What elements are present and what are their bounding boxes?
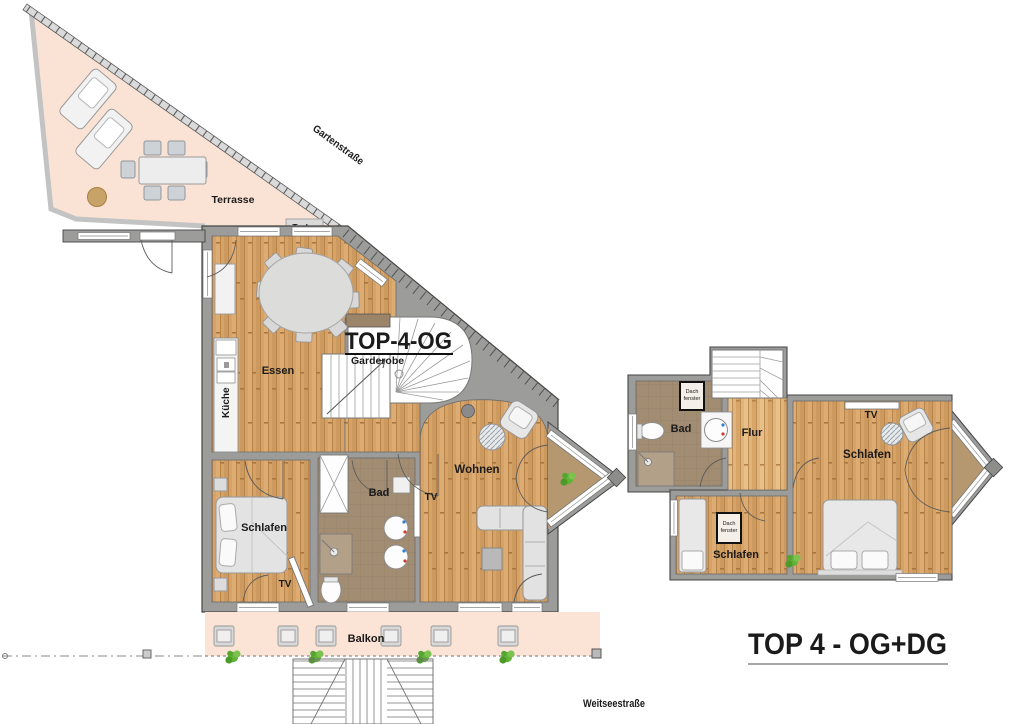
svg-text:fenster: fenster: [684, 396, 701, 402]
plan-og: Essen Küche Schlafen TV Bad TV Wohnen TO…: [63, 226, 626, 612]
exterior-staircase: [293, 659, 433, 724]
flur-label: Flur: [742, 427, 763, 439]
garderobe-label: Garderobe: [351, 355, 404, 367]
wing-window: [78, 233, 130, 240]
balcony-area: Balkon: [3, 612, 602, 664]
balkon-label: Balkon: [348, 633, 385, 645]
essen-sideboard: [215, 264, 235, 314]
terrace-area: Terrasse Gartenstraße Truhe: [23, 4, 366, 235]
terrace-side-table: [88, 188, 107, 207]
floorplan-drawing: Terrasse Gartenstraße Truhe: [0, 0, 1024, 724]
side-table-dg: [881, 423, 903, 445]
tv-dg-label: TV: [865, 410, 878, 421]
bay-window-dg: [948, 411, 1003, 525]
weitseestrasse-label: Weitseestraße: [583, 698, 645, 710]
og-title: TOP-4-OG: [345, 328, 452, 355]
title-block: TOP 4 - OG+DG: [748, 628, 948, 664]
bay-window-og: [546, 422, 626, 534]
property-marker-1: [143, 650, 151, 658]
floor-flur: [728, 398, 787, 490]
bed-dg-gross: [818, 500, 902, 575]
tv-dg: [845, 402, 899, 409]
balcony-plant-icon: [499, 650, 514, 663]
garderobe-closet: [346, 314, 390, 327]
floorplan-page: Terrasse Gartenstraße Truhe: [0, 0, 1024, 724]
balcony-floor: [205, 612, 600, 656]
schlafen-dg-gross-label: Schlafen: [843, 449, 891, 461]
dg-staircase: [712, 350, 783, 398]
dachfenster-box-bad: Dach fenster: [680, 382, 704, 410]
svg-text:Gartenstraße: Gartenstraße: [310, 123, 366, 168]
svg-text:Dach: Dach: [723, 521, 736, 527]
bad-og-label: Bad: [369, 487, 390, 499]
schlafen-dg-klein-label: Schlafen: [713, 549, 759, 561]
tv-og-wohnen: [414, 485, 420, 537]
plan-dg: Dach fenster Dach fenster: [628, 347, 1003, 582]
tv-schlafen-label: TV: [279, 579, 292, 590]
kueche-label: Küche: [221, 387, 232, 418]
bed-dg-klein: [679, 499, 706, 572]
wohnen-label: Wohnen: [454, 464, 499, 476]
svg-text:Dach: Dach: [686, 389, 699, 395]
gartenstrasse-label: Gartenstraße: [310, 123, 366, 168]
tv-wohnen-label: TV: [425, 492, 438, 503]
terrace-label: Terrasse: [211, 194, 254, 206]
balcony-plant-icon: [225, 650, 240, 663]
property-marker-2: [592, 649, 601, 658]
essen-dining-set: [256, 247, 359, 342]
bad-dg-label: Bad: [671, 423, 692, 435]
svg-text:fenster: fenster: [721, 528, 738, 534]
svg-text:Küche: Küche: [221, 387, 232, 418]
schlafen-og-label: Schlafen: [241, 522, 287, 534]
essen-label: Essen: [262, 365, 295, 377]
dachfenster-box-schlafen: Dach fenster: [717, 513, 741, 543]
combined-title: TOP 4 - OG+DG: [748, 628, 947, 661]
